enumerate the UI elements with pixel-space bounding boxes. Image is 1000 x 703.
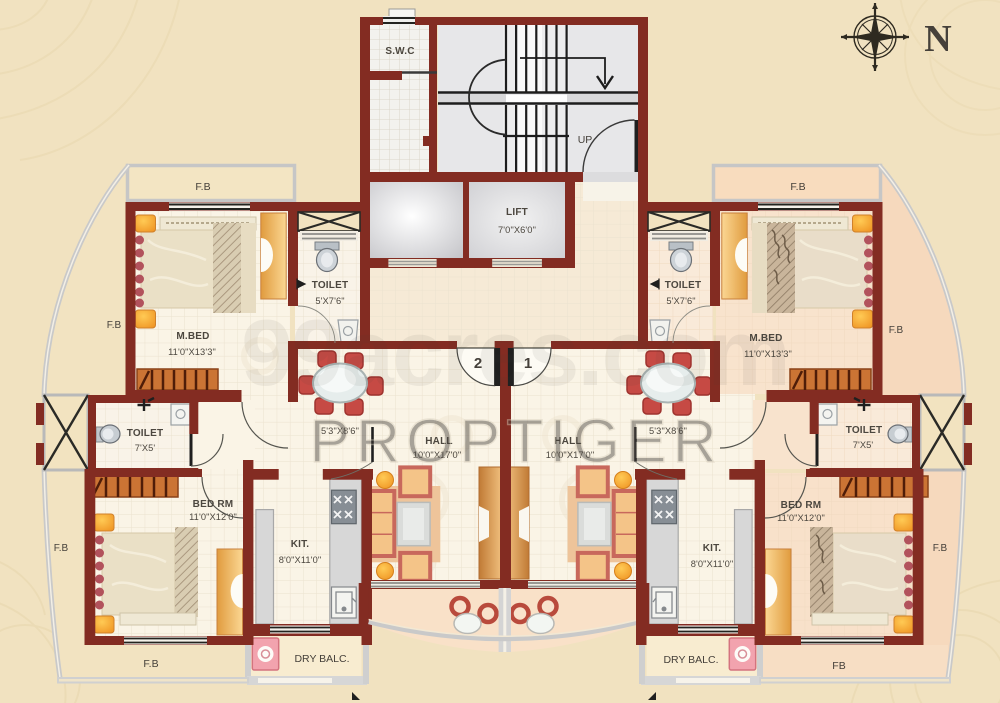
svg-text:F.B: F.B [107,320,122,331]
svg-text:BED RM: BED RM [781,500,822,511]
svg-text:PROPTIGER: PROPTIGER [309,407,722,475]
svg-text:FB: FB [832,660,845,672]
svg-text:DRY BALC.: DRY BALC. [663,654,718,666]
svg-text:DRY BALC.: DRY BALC. [294,653,349,665]
svg-text:F.B: F.B [54,543,69,554]
svg-text:TOILET: TOILET [127,428,164,439]
svg-text:7'0"X6'0": 7'0"X6'0" [498,225,536,235]
svg-text:KIT.: KIT. [291,539,310,550]
svg-text:7'X5': 7'X5' [853,440,874,450]
svg-text:KIT.: KIT. [703,543,722,554]
svg-text:M.BED: M.BED [176,331,209,342]
svg-text:F.B: F.B [790,181,805,193]
svg-text:F.B: F.B [143,658,158,670]
svg-text:8'0"X11'0": 8'0"X11'0" [691,559,734,569]
svg-text:11'0"X12'0": 11'0"X12'0" [777,513,825,523]
svg-text:F.B: F.B [889,325,904,336]
svg-text:LIFT: LIFT [506,207,528,218]
svg-text:F.B: F.B [195,181,210,193]
svg-text:F.B: F.B [933,543,948,554]
svg-text:N: N [924,18,951,60]
svg-text:TOILET: TOILET [846,425,883,436]
svg-text:99acres.com: 99acres.com [241,300,789,405]
svg-text:11'0"X12'0": 11'0"X12'0" [189,512,237,522]
svg-text:S.W.C: S.W.C [385,46,414,57]
svg-text:8'0"X11'0": 8'0"X11'0" [279,555,322,565]
svg-text:UP: UP [578,134,593,146]
svg-text:TOILET: TOILET [665,280,702,291]
svg-text:11'0"X13'3": 11'0"X13'3" [168,347,216,357]
svg-text:BED RM: BED RM [193,499,234,510]
svg-text:7'X5': 7'X5' [135,443,156,453]
svg-text:TOILET: TOILET [312,280,349,291]
